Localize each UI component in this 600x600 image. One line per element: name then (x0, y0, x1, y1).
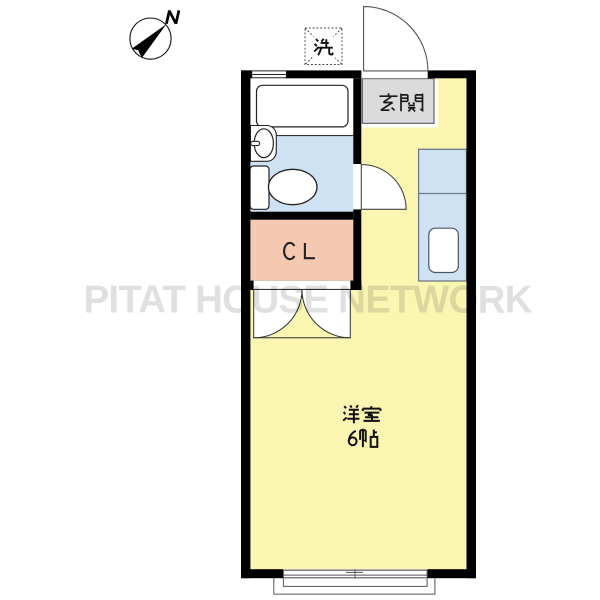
svg-text:PITAT HOUSE NETWORK: PITAT HOUSE NETWORK (84, 279, 533, 322)
